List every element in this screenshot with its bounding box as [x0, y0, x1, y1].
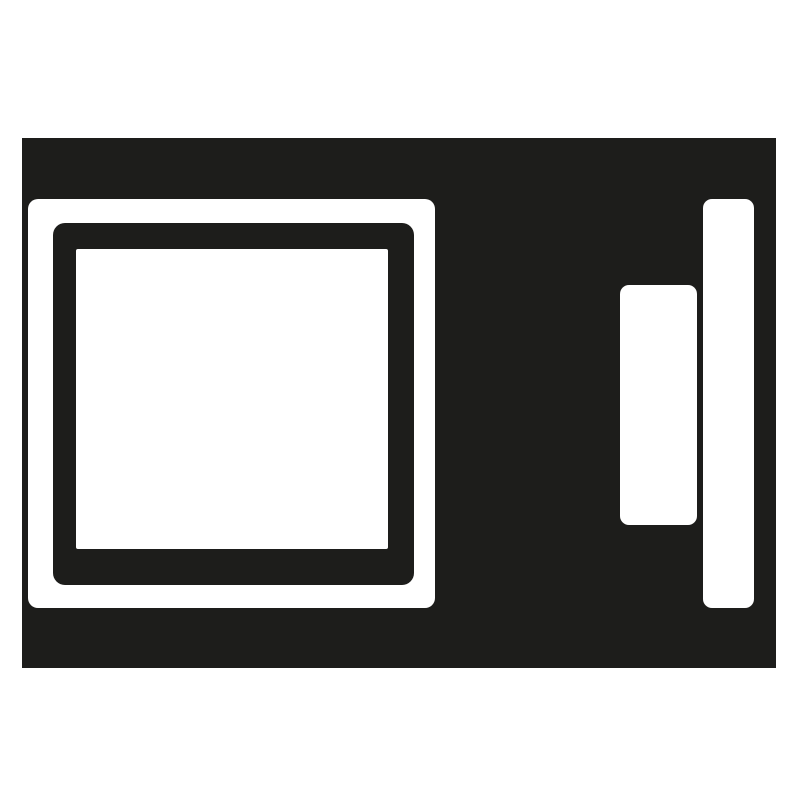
door-window-inner-ring — [53, 223, 414, 585]
door-window-glass — [76, 249, 388, 549]
microwave-body — [22, 138, 776, 668]
icon-canvas — [0, 0, 800, 800]
door-handle-bar — [703, 199, 754, 608]
door-window-frame — [28, 199, 435, 608]
control-panel-button — [620, 285, 697, 525]
